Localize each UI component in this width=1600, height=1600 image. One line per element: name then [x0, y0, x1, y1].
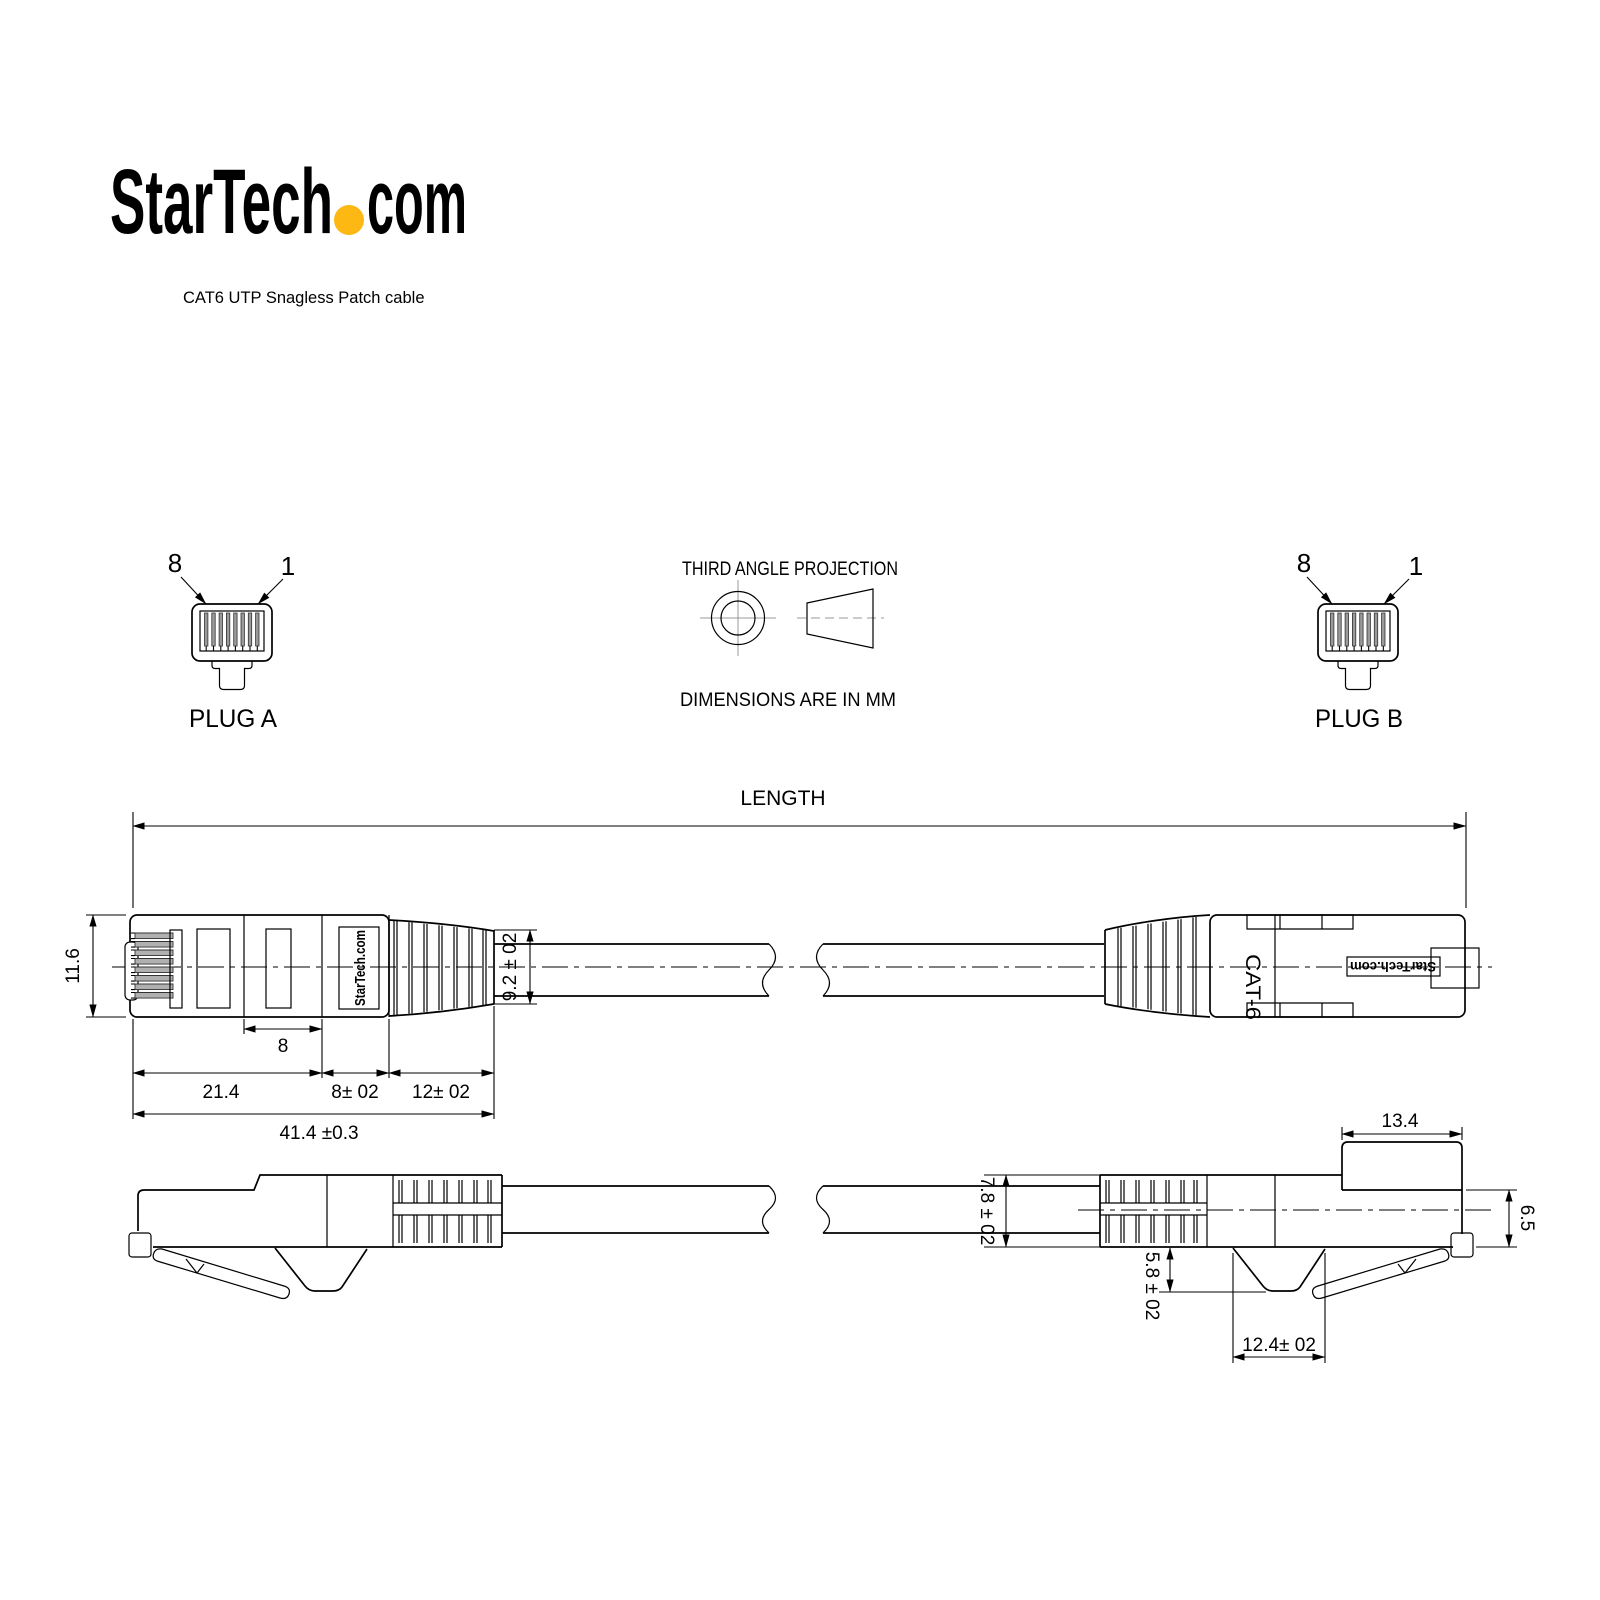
drawing-page: StarTech com CAT6 UTP Snagless Patch cab… [0, 0, 1600, 1600]
right-brand-marking: StarTech.com [1350, 959, 1436, 974]
side-view-drawing: LENGTH StarTech.com [63, 787, 1492, 1144]
left-bottom-dividers [327, 1175, 393, 1247]
hook-width-label: 12.4± 02 [1242, 1335, 1316, 1356]
right-boot-hook [1233, 1248, 1325, 1291]
plug-a-pin1-label: 1 [281, 551, 295, 581]
right-contact-tab [1431, 948, 1479, 988]
hook-depth-label: 5.8 ± 02 [1141, 1252, 1162, 1321]
plug-contact-comb [206, 646, 257, 651]
logo-dot-icon [334, 205, 364, 235]
right-bottom-dividers [1207, 1175, 1275, 1247]
plug-a-labels: 8 1 PLUG A [168, 548, 295, 733]
cable-break-marks-bottom [763, 1186, 830, 1233]
right-latch-lever [1313, 1249, 1449, 1299]
left-boot-hook [275, 1248, 367, 1291]
left-connector-side: StarTech.com [125, 915, 494, 1017]
latch-window-label: 8 [278, 1036, 289, 1057]
left-brand-marking: StarTech.com [352, 930, 369, 1006]
product-subtitle: CAT6 UTP Snagless Patch cable [183, 289, 425, 307]
plug-b-front-view [1307, 577, 1409, 690]
right-boot-bands [1100, 1203, 1207, 1215]
logo-text-main: StarTech [110, 151, 333, 253]
cable-break-marks-top [763, 944, 830, 996]
pin1-leader-arrow [258, 579, 283, 604]
plug-b-title: PLUG B [1315, 705, 1403, 733]
plug-contact-cavity [200, 611, 264, 651]
startech-logo: StarTech com CAT6 UTP Snagless Patch cab… [110, 151, 467, 307]
cable-bottom-row [502, 1186, 1100, 1233]
plug-latch-tab [212, 661, 252, 690]
third-angle-projection: THIRD ANGLE PROJECTION DIMENSIONS ARE IN… [680, 559, 898, 711]
right-bottom-boot-ribs [1106, 1180, 1197, 1243]
body-length-label: 21.4 [203, 1082, 240, 1103]
boot-dia-label: 9.2 ± 02 [500, 933, 521, 1002]
cable-category-marking: CAT-6 [1241, 954, 1264, 1020]
front-height-label: 6.5 [1516, 1205, 1537, 1231]
left-latch-lever [153, 1249, 289, 1299]
pin8-leader-arrow [181, 577, 206, 604]
boot-height-label: 7.8 ± 02 [976, 1177, 997, 1246]
plug-b-pin1-label: 1 [1409, 551, 1423, 581]
height-extension-lines [86, 915, 126, 1017]
left-connector-bottom [129, 1175, 502, 1299]
right-latch-base-nub [1451, 1233, 1473, 1257]
boot-length-label: 8± 02 [331, 1082, 378, 1103]
overall-length-label: 41.4 ±0.3 [279, 1123, 358, 1144]
left-connector-body [130, 915, 389, 1017]
step-length-label: 13.4 [1382, 1111, 1419, 1132]
plug-a-title: PLUG A [189, 705, 277, 733]
plug-outer-shell [192, 604, 272, 661]
projection-title: THIRD ANGLE PROJECTION [682, 559, 898, 580]
logo-text-suffix: com [367, 151, 467, 253]
height-label: 11.6 [63, 948, 84, 984]
left-latch-base-nub [129, 1233, 151, 1257]
right-boot-ribs [1118, 917, 1196, 1015]
bottom-view-drawing: 13.4 7.8 ± 02 6.5 5.8 ± 02 12.4± 02 [129, 1111, 1537, 1363]
plug-front-view [181, 577, 283, 690]
pin-contact-bars [135, 933, 173, 998]
relief-length-label: 12± 02 [412, 1082, 470, 1103]
plug-a-pin8-label: 8 [168, 548, 182, 578]
cable-top-row [494, 944, 1104, 996]
left-window-b [197, 929, 230, 1008]
left-bottom-boot-ribs [399, 1180, 491, 1243]
technical-drawing: StarTech com CAT6 UTP Snagless Patch cab… [0, 0, 1600, 1600]
plug-b-pin8-label: 8 [1297, 548, 1311, 578]
length-label: LENGTH [740, 787, 825, 810]
units-note: DIMENSIONS ARE IN MM [680, 690, 896, 711]
left-boot-bands [393, 1203, 502, 1215]
left-latch-window [266, 929, 291, 1008]
plug-contacts [205, 613, 260, 646]
left-boot-ribs [394, 921, 486, 1016]
